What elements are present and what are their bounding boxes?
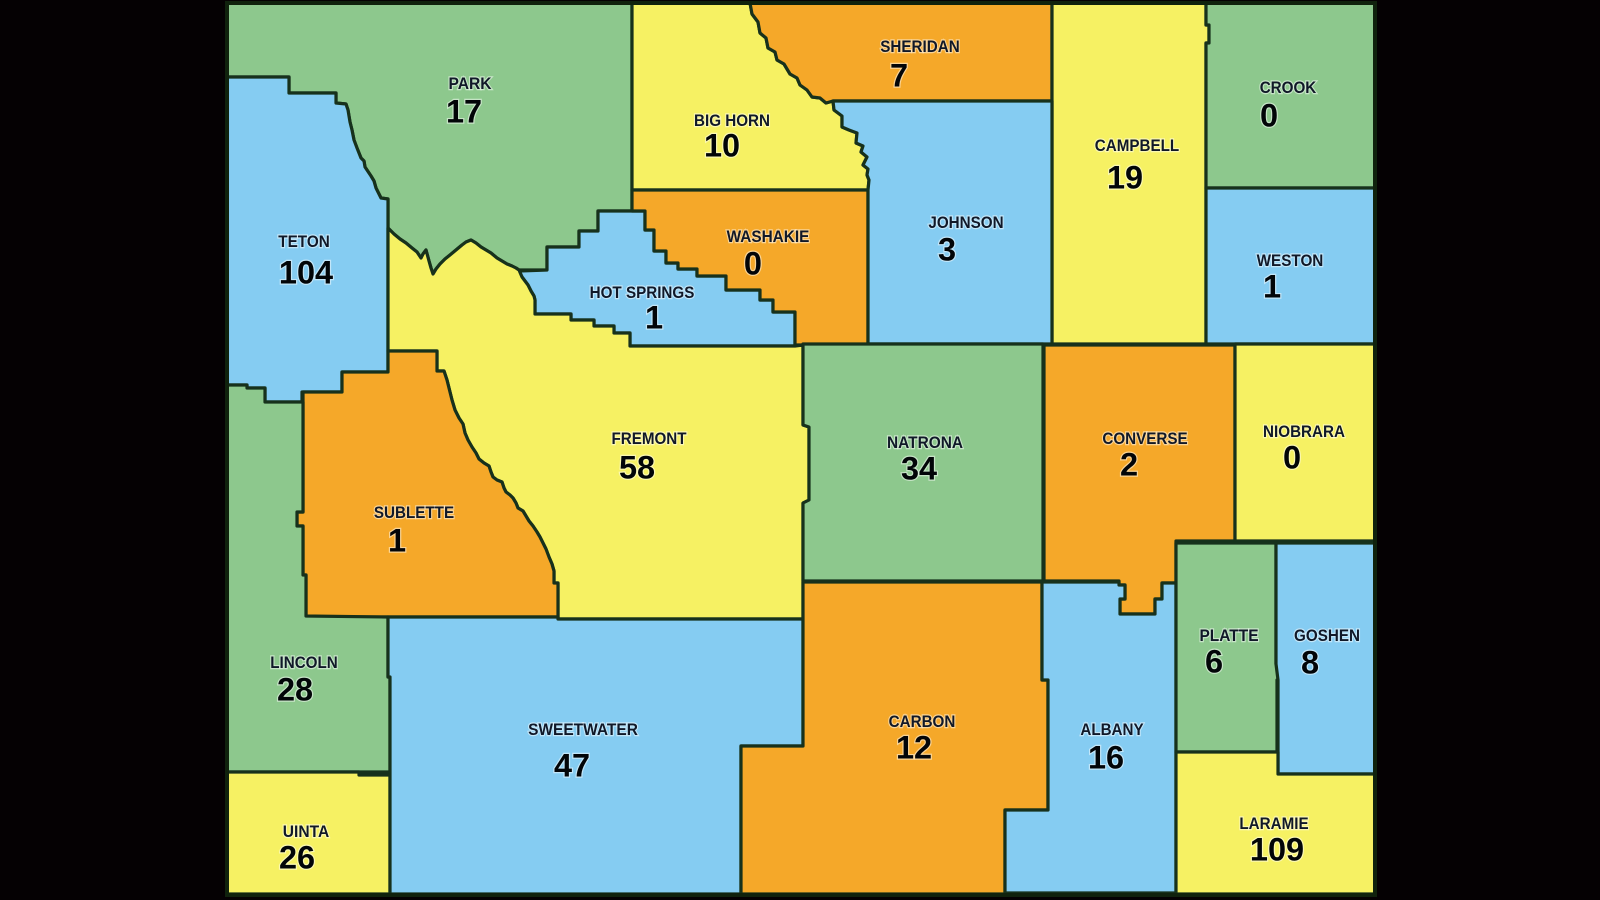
svg-text:6: 6 xyxy=(1205,644,1223,680)
svg-text:19: 19 xyxy=(1107,160,1143,196)
svg-text:NIOBRARA: NIOBRARA xyxy=(1263,422,1345,441)
svg-text:LARAMIE: LARAMIE xyxy=(1239,814,1308,833)
svg-text:28: 28 xyxy=(277,672,313,708)
svg-text:58: 58 xyxy=(619,450,655,486)
svg-text:JOHNSON: JOHNSON xyxy=(928,213,1003,232)
svg-text:16: 16 xyxy=(1088,740,1124,776)
svg-text:1: 1 xyxy=(388,523,406,559)
svg-text:0: 0 xyxy=(744,246,762,282)
svg-text:WESTON: WESTON xyxy=(1257,251,1324,270)
svg-text:7: 7 xyxy=(890,58,908,94)
svg-text:SWEETWATER: SWEETWATER xyxy=(528,720,638,739)
svg-text:HOT SPRINGS: HOT SPRINGS xyxy=(590,283,695,302)
svg-text:8: 8 xyxy=(1301,645,1319,681)
svg-text:TETON: TETON xyxy=(278,232,330,251)
svg-text:17: 17 xyxy=(446,94,482,130)
svg-text:26: 26 xyxy=(279,840,315,876)
svg-text:PARK: PARK xyxy=(448,74,492,93)
svg-text:CROOK: CROOK xyxy=(1260,78,1317,97)
svg-text:CAMPBELL: CAMPBELL xyxy=(1095,136,1179,155)
svg-text:GOSHEN: GOSHEN xyxy=(1294,626,1360,645)
svg-text:12: 12 xyxy=(896,730,932,766)
svg-text:1: 1 xyxy=(1263,269,1281,305)
svg-text:104: 104 xyxy=(279,255,333,291)
svg-text:ALBANY: ALBANY xyxy=(1080,720,1144,739)
svg-text:NATRONA: NATRONA xyxy=(887,433,963,452)
svg-text:CONVERSE: CONVERSE xyxy=(1102,429,1187,448)
svg-text:0: 0 xyxy=(1260,98,1278,134)
svg-text:47: 47 xyxy=(554,748,590,784)
svg-text:LINCOLN: LINCOLN xyxy=(270,653,338,672)
svg-text:3: 3 xyxy=(938,232,956,268)
svg-text:109: 109 xyxy=(1250,832,1304,868)
svg-text:1: 1 xyxy=(645,300,663,336)
svg-text:UINTA: UINTA xyxy=(283,822,329,841)
svg-text:SUBLETTE: SUBLETTE xyxy=(374,503,454,522)
svg-text:SHERIDAN: SHERIDAN xyxy=(880,37,959,56)
svg-text:0: 0 xyxy=(1283,440,1301,476)
svg-text:PLATTE: PLATTE xyxy=(1199,626,1258,645)
svg-text:CARBON: CARBON xyxy=(889,712,956,731)
svg-text:10: 10 xyxy=(704,128,740,164)
svg-text:34: 34 xyxy=(901,451,937,487)
svg-text:FREMONT: FREMONT xyxy=(611,429,687,448)
svg-text:WASHAKIE: WASHAKIE xyxy=(727,227,810,246)
svg-text:2: 2 xyxy=(1120,447,1138,483)
